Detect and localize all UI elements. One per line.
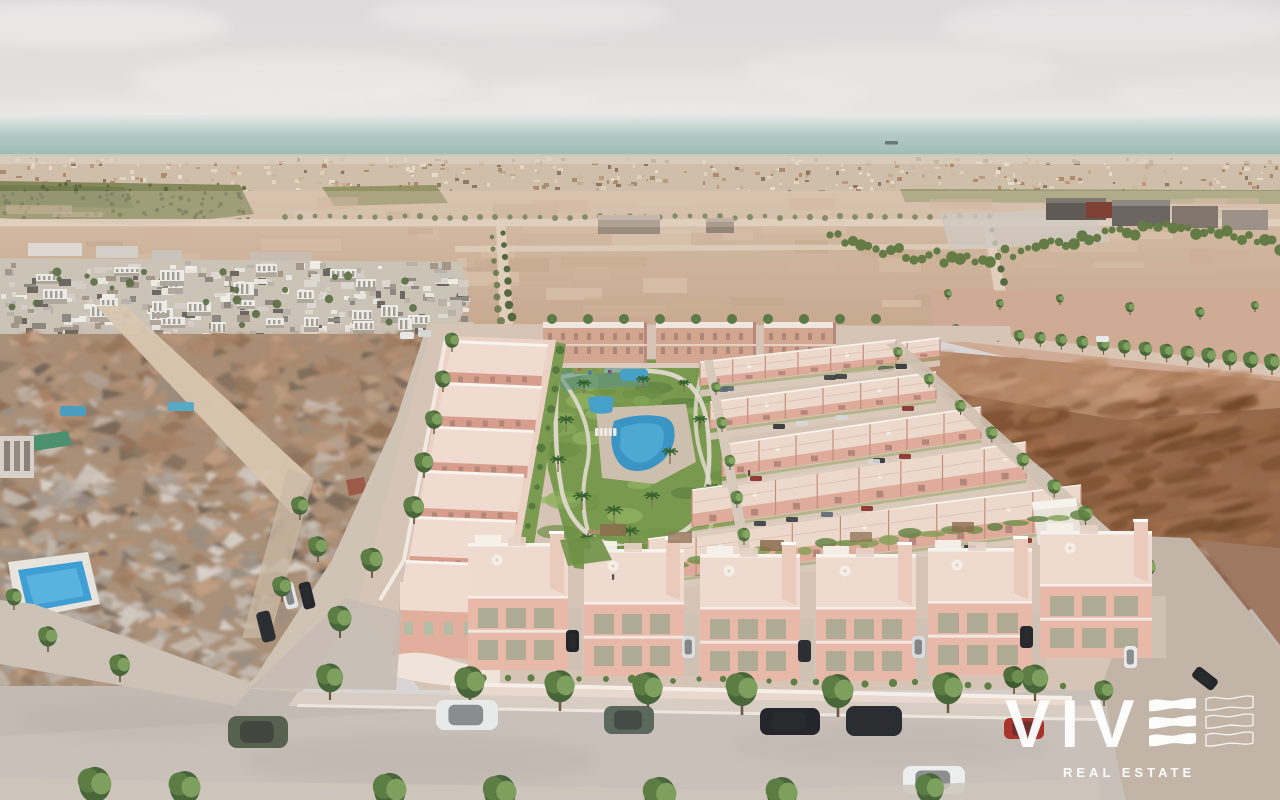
svg-text:VIV: VIV: [1005, 686, 1145, 762]
svg-text:REAL ESTATE: REAL ESTATE: [1063, 765, 1195, 780]
